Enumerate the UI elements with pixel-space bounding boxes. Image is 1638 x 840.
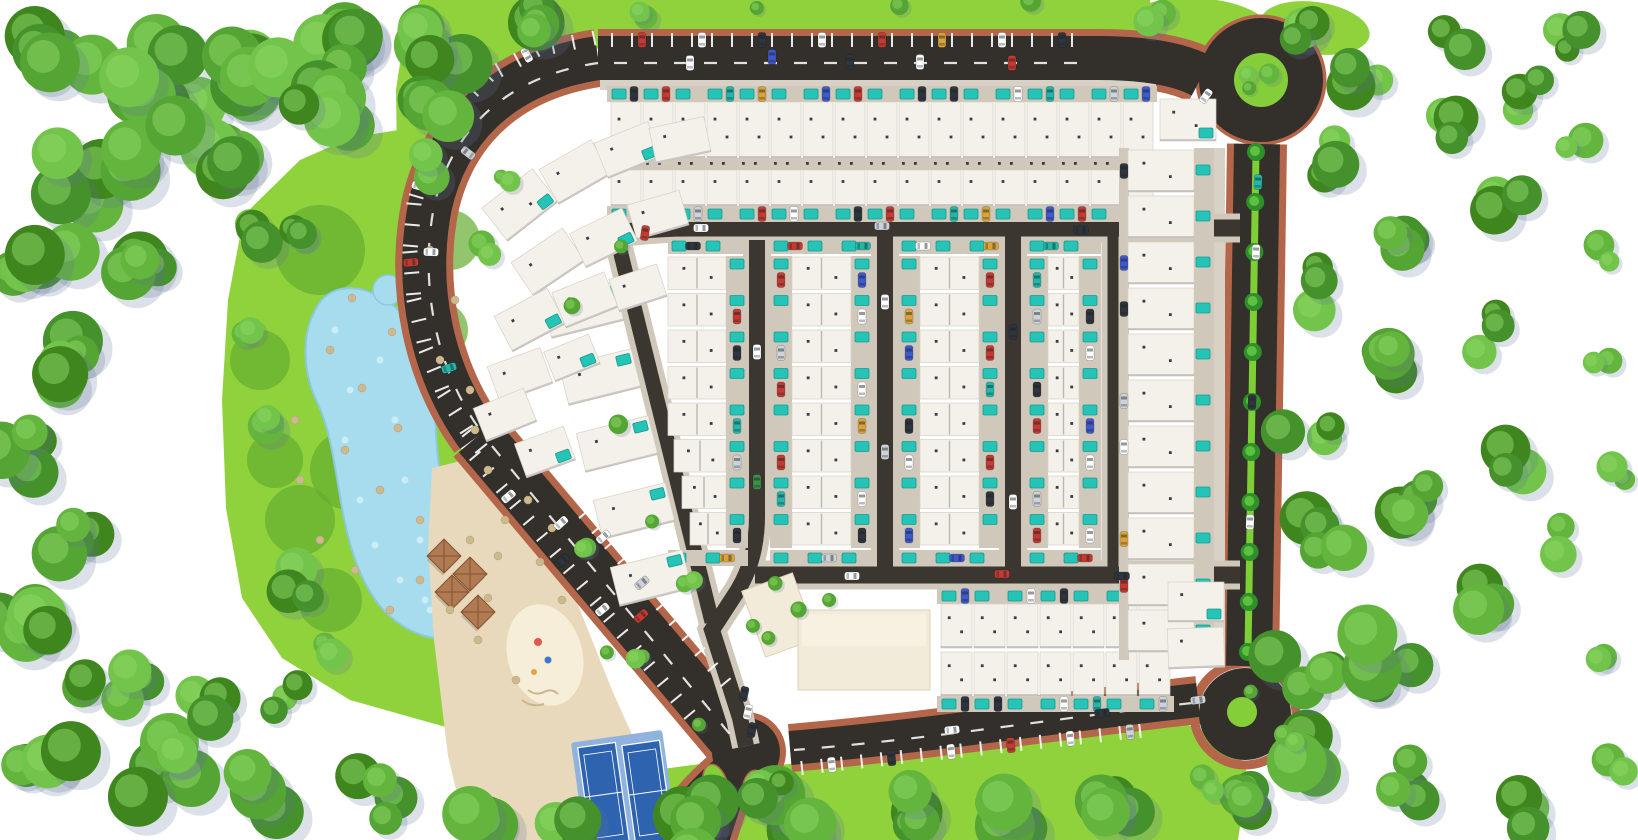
swimming-pool [706,553,720,563]
car [986,382,994,397]
car-rear-window [1087,466,1093,469]
car-rear-window [696,225,699,231]
roof-vent [938,118,941,121]
car-windshield [797,243,800,249]
roof-vent [1125,678,1128,681]
house-shadow [1059,204,1089,206]
house-shadow [771,156,801,158]
car-windshield [1061,592,1067,595]
car-rear-window [1121,450,1127,453]
tree-highlight [1587,234,1604,251]
roof-vent [683,376,686,379]
car-windshield [1083,227,1086,233]
swimming-pool [1030,296,1044,306]
roof-vent [1070,459,1073,462]
car [1190,695,1206,705]
parking-stall-line [404,272,419,273]
car-windshield [1034,276,1040,279]
tree-highlight [296,584,314,602]
tree-highlight [1392,499,1415,522]
house [1040,604,1071,648]
car-rear-window [951,97,957,100]
tree-highlight [616,241,624,249]
car [995,570,1010,578]
car-rear-window [859,429,865,432]
car [905,419,913,434]
car-windshield [1034,385,1040,388]
tree-highlight [1439,126,1457,144]
swimming-pool [774,369,788,379]
house-shadow [1091,204,1121,206]
roof-vent [962,495,965,498]
roof-vent [807,376,810,379]
swimming-pool [1196,303,1210,313]
house [1073,604,1104,648]
roof-vent [850,162,853,165]
car [1086,419,1094,434]
car [777,273,785,288]
house [941,652,972,696]
house-shadow [1160,139,1216,141]
roof-vent [1169,497,1172,500]
roof-vent [935,340,938,343]
car [1086,455,1094,470]
car [886,207,894,222]
swimming-pool [983,259,997,269]
swimming-pool [983,296,997,306]
car [1086,309,1094,324]
roof-vent [1026,630,1029,633]
house [963,170,993,206]
house [899,170,929,206]
palm-tree [1247,346,1257,356]
car-rear-window [1080,555,1083,561]
tree-highlight [1087,794,1114,821]
roof-vent [746,118,749,121]
car-rear-window [1249,405,1255,408]
roof-vent [1143,484,1146,487]
roof-vent [710,386,713,389]
car-windshield [859,422,865,425]
car-windshield [1121,581,1127,584]
roof-vent [1070,422,1073,425]
car [1033,382,1041,397]
roof-vent [810,118,813,121]
swimming-pool [1199,128,1213,138]
roof-vent [1056,267,1059,270]
car-windshield [778,349,784,352]
house-shadow [899,204,929,206]
roof-vent [774,162,777,165]
bush [466,536,474,544]
tree-highlight [601,647,609,655]
swimming-pool [932,209,946,219]
house-shadow [739,204,769,206]
house-shadow [1128,328,1194,330]
swimming-pool [730,332,744,342]
car-windshield [953,727,957,733]
swimming-pool [902,478,916,488]
car-windshield [759,90,765,93]
car-windshield [1053,243,1056,249]
tree-highlight [502,173,514,185]
car [1058,33,1066,48]
car-windshield [1121,397,1127,400]
house [1007,652,1038,696]
water-sparkle [402,477,409,484]
car [726,87,734,102]
car-windshield [887,210,893,213]
car [694,224,709,232]
car [984,242,999,250]
car-rear-window [734,466,740,469]
car-rear-window [987,356,993,359]
roof-vent [1143,254,1146,257]
house-shadow [963,156,993,158]
roof-vent [1066,180,1069,183]
swimming-pool [936,241,950,251]
play-equipment [531,669,537,675]
house [835,102,865,158]
roof-vent [1078,136,1081,139]
tree-highlight [1283,27,1300,44]
car [986,346,994,361]
swimming-pool [1083,405,1097,415]
house-shadow [974,646,1005,648]
car [423,248,438,257]
bush [291,416,299,424]
car-rear-window [695,217,701,220]
swimming-pool [1064,553,1078,563]
car-windshield [1143,90,1149,93]
tree-highlight [824,595,832,603]
tree-highlight [742,783,764,805]
roof-vent [1092,678,1095,681]
house-shadow [867,156,897,158]
car-body [1094,708,1110,718]
house-shadow [771,204,801,206]
tree-highlight [246,226,269,249]
swimming-pool [804,89,818,99]
swimming-pool [1107,699,1121,709]
swimming-pool [1028,209,1042,219]
roof-vent [1030,162,1033,165]
car [640,225,650,241]
roof-vent [722,162,725,165]
car-windshield [1004,571,1007,577]
car-rear-window [1034,283,1040,286]
house-shadow [1091,156,1121,158]
tree-highlight [1415,474,1432,491]
roof-vent [1080,616,1083,619]
swimming-pool [1083,332,1097,342]
roof-vent [1002,118,1005,121]
roof-vent [948,664,951,667]
swimming-pool [902,369,916,379]
house [739,170,769,206]
roof-vent [1195,124,1198,127]
water-sparkle [392,417,399,424]
car [858,309,866,324]
car-windshield [1087,312,1093,315]
car [788,242,803,250]
house [941,604,972,648]
car-windshield [734,349,740,352]
swimming-pool [1083,478,1097,488]
roof-vent [807,267,810,270]
car [753,345,761,360]
car-windshield [1121,167,1127,170]
house-shadow [1128,512,1194,514]
roof-vent [1143,438,1146,441]
car-rear-window [1061,599,1067,602]
tree-highlight [27,40,60,73]
house-shadow [803,204,833,206]
house-shadow [835,156,865,158]
house-shadow [707,204,737,206]
car-rear-window [939,43,945,46]
car-rear-window [1034,502,1040,505]
car-windshield [854,573,857,579]
car [1033,528,1041,543]
roof-vent [807,413,810,416]
swimming-pool [1196,395,1210,405]
swimming-pool [964,89,978,99]
car-rear-window [987,393,993,396]
car-body [1190,695,1206,705]
car-windshield [1010,498,1016,501]
roof-vent [1074,162,1077,165]
roof-vent [714,118,717,121]
car [1086,528,1094,543]
car [986,273,994,288]
tree-highlight [1137,10,1154,27]
teardrop-island [1227,697,1257,727]
swimming-pool [1124,89,1138,99]
tree-highlight [576,542,586,552]
roof-vent [687,449,690,452]
car-windshield [882,298,888,301]
swimming-pool [902,442,916,452]
roof-vent [935,486,938,489]
tree-highlight [240,320,255,335]
tree-highlight [1335,53,1357,75]
swimming-pool [708,209,722,219]
car-rear-window [639,43,645,46]
car-windshield [778,458,784,461]
tree-highlight [1245,686,1253,694]
car [881,295,889,310]
car-rear-window [855,217,861,220]
roof-vent [1143,622,1146,625]
roof-vent [1169,267,1172,270]
house-shadow [1168,620,1224,622]
car-rear-window [1015,97,1021,100]
roof-vent [1034,180,1037,183]
car-rear-window [987,466,993,469]
car [1027,589,1035,604]
tree-highlight [1449,34,1472,57]
roof-vent [938,180,941,183]
roof-vent [948,616,951,619]
house-shadow [995,156,1025,158]
car [946,744,956,760]
car-windshield [1255,177,1261,180]
car-windshield [882,448,888,451]
tree-highlight [1601,254,1612,265]
car-windshield [1061,700,1067,703]
car-rear-window [734,356,740,359]
swimming-pool [1008,591,1022,601]
roof-vent [1146,664,1149,667]
car [777,346,785,361]
tree-highlight [154,33,187,66]
car [1078,207,1086,222]
roof-vent [886,136,889,139]
tree-highlight [1501,781,1526,806]
tree-highlight [1476,192,1503,219]
car-windshield [823,90,829,93]
car-windshield [1059,36,1065,39]
car [1006,737,1016,753]
bush [474,636,482,644]
tree-highlight [751,3,759,11]
tree-highlight [1567,16,1588,37]
car-windshield [703,225,706,231]
bush [348,294,356,302]
car-windshield [432,249,435,255]
car [961,697,969,712]
car-windshield [939,36,945,39]
house-shadow [1027,156,1057,158]
car-rear-window [727,97,733,100]
car [758,87,766,102]
roof-vent [790,136,793,139]
car [854,87,862,102]
roof-vent [1158,678,1161,681]
roof-vent [1080,664,1083,667]
tree-highlight [1288,735,1299,746]
car [1120,440,1128,455]
car [1033,309,1041,324]
roof-vent [982,136,985,139]
swimming-pool [774,259,788,269]
car-windshield [959,555,962,561]
tree-highlight [38,134,66,162]
house-shadow [1073,646,1104,648]
roof-vent [1143,300,1146,303]
roof-vent [870,162,873,165]
swimming-pool [1196,211,1210,221]
car [1046,207,1054,222]
roof-vent [966,162,969,165]
roof-vent [650,180,653,183]
house-shadow [1128,190,1194,192]
car-rear-window [995,707,1001,710]
roof-vent [1169,313,1172,316]
swimming-pool [1030,259,1044,269]
roof-vent [834,313,837,316]
car-rear-window [919,97,925,100]
tree-highlight [1595,747,1613,765]
car [1014,87,1022,102]
car [858,528,866,543]
car-windshield [906,422,912,425]
car-windshield [859,276,865,279]
car-windshield [695,210,701,213]
car [986,492,994,507]
car [961,589,969,604]
house [1139,652,1170,696]
water-sparkle [397,577,404,584]
roof-vent [934,162,937,165]
roof-vent [978,162,981,165]
roof-vent [1056,303,1059,306]
house [1128,150,1194,192]
roof-vent [874,180,877,183]
tree-highlight [115,774,148,807]
house [1091,170,1121,206]
palm-tree [1249,196,1259,206]
car-rear-window [1121,588,1127,591]
house [1128,426,1194,468]
bush [451,296,459,304]
tree-highlight [113,655,137,679]
tree-highlight [1318,147,1344,173]
tree-highlight [69,664,92,687]
car [694,207,702,222]
roof-vent [1180,640,1183,643]
roof-vent [842,180,845,183]
roof-vent [1142,136,1145,139]
swimming-pool [740,209,754,219]
car-rear-window [778,393,784,396]
tree-highlight [1266,415,1290,439]
car-windshield [778,276,784,279]
house-solo [1168,582,1224,622]
swimming-pool [1074,591,1088,601]
parking-stall-line [403,245,418,246]
car-rear-window [823,97,829,100]
car-rear-window [759,97,765,100]
swimming-pool [804,209,818,219]
car-rear-window [987,283,993,286]
roof-vent [854,136,857,139]
house-shadow [1128,466,1194,468]
car-windshield [1160,700,1166,703]
car-windshield [859,312,865,315]
car-windshield [1124,573,1127,579]
car-rear-window [1009,66,1015,69]
roof-vent [1143,208,1146,211]
bush [386,606,394,614]
roof-vent [710,313,713,316]
swimming-pool [902,332,916,342]
car [1066,731,1076,747]
roof-vent [834,532,837,535]
swimming-pool [942,591,956,601]
car [918,87,926,102]
bush [501,516,509,524]
bush [341,446,349,454]
roof-vent [1106,162,1109,165]
car-windshield [855,90,861,93]
car-rear-window [1143,97,1149,100]
car-windshield [687,59,693,62]
car [905,346,913,361]
car-windshield [1034,422,1040,425]
car-rear-window [1028,599,1034,602]
